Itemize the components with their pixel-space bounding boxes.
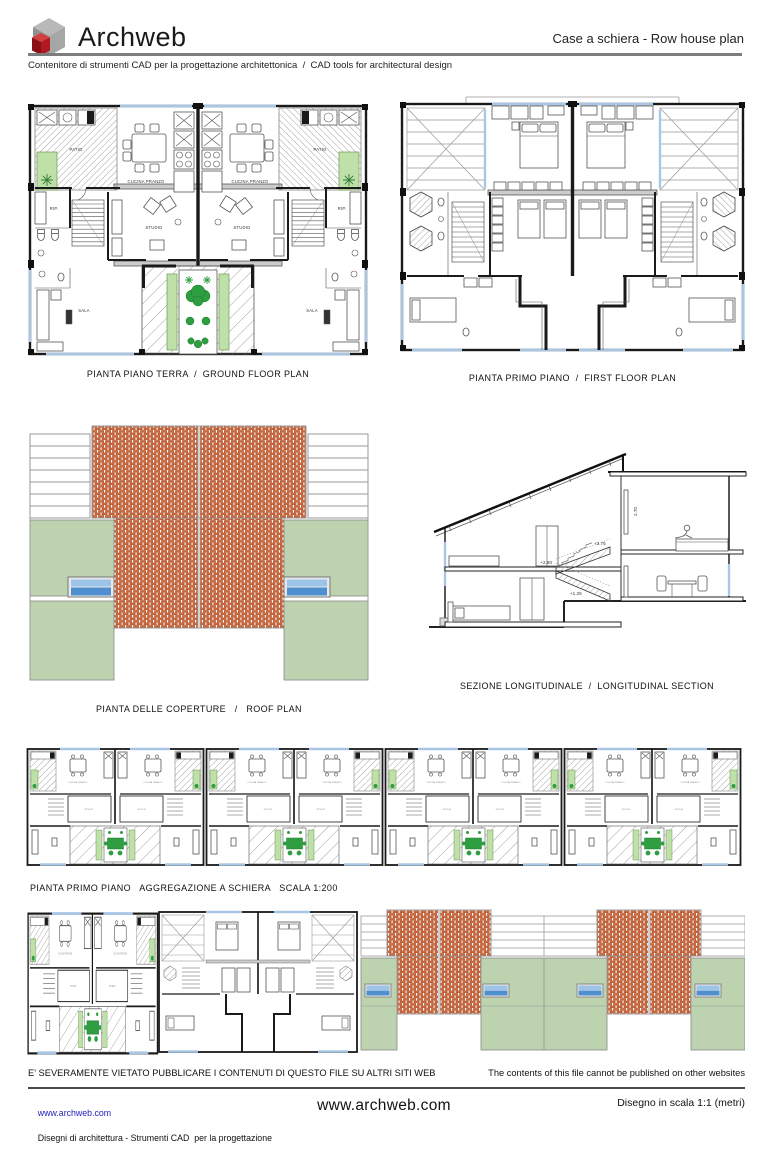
section-caption: SEZIONE LONGITUDINALE / LONGITUDINAL SEC… xyxy=(424,681,750,691)
svg-text:PATIO: PATIO xyxy=(314,147,327,152)
ground-floor-panel: PATIO PATIO CUCINA PRANZO CUCINA PRANZO … xyxy=(28,100,368,379)
section-panel: +2.90 +3.75 +1.25 2.70 SEZIONE LONGITUDI… xyxy=(424,446,750,691)
svg-text:RIP.: RIP. xyxy=(338,206,346,211)
first-floor-caption: PIANTA PRIMO PIANO / FIRST FLOOR PLAN xyxy=(400,373,745,383)
composite-drawing xyxy=(25,908,745,1060)
aggregation-panel: PIANTA PRIMO PIANO AGGREGAZIONE A SCHIER… xyxy=(25,744,745,893)
ground-floor-plan-drawing: PATIO PATIO CUCINA PRANZO CUCINA PRANZO … xyxy=(28,100,368,360)
brand-text: Archweb xyxy=(78,22,187,53)
first-floor-panel: PIANTA PRIMO PIANO / FIRST FLOOR PLAN xyxy=(400,94,745,383)
room-label-studio: STUDIO xyxy=(145,225,163,230)
first-floor-plan-drawing xyxy=(400,94,745,362)
drawing-sheet: CUCINA PRANZO CUCINA PRANZO STUDIO STUDI… xyxy=(0,0,768,1157)
roof-plan-panel: PIANTA DELLE COPERTURE / ROOF PLAN xyxy=(28,420,370,714)
page-title: Case a schiera - Row house plan xyxy=(553,31,745,46)
svg-text:CUCINA PRANZO: CUCINA PRANZO xyxy=(231,179,269,184)
height-label-270: 2.70 xyxy=(633,507,638,516)
level-label-375: +3.75 xyxy=(594,541,606,546)
disclaimer-row: E' SEVERAMENTE VIETATO PUBBLICARE I CONT… xyxy=(28,1068,745,1078)
room-label-patio: PATIO xyxy=(70,147,83,152)
disclaimer-it: E' SEVERAMENTE VIETATO PUBBLICARE I CONT… xyxy=(28,1068,435,1078)
composite-panel xyxy=(25,908,745,1060)
roof-plan-drawing xyxy=(28,420,370,682)
gf-party-wall xyxy=(196,106,199,266)
footer-scale-note: Disegno in scala 1:1 (metri) xyxy=(617,1097,745,1109)
gf-courtyard xyxy=(142,266,254,354)
level-label-125: +1.25 xyxy=(570,591,582,596)
disclaimer-en: The contents of this file cannot be publ… xyxy=(488,1068,745,1078)
composite-roofs xyxy=(361,910,745,1050)
level-label-290: +2.90 xyxy=(540,560,552,565)
ff-party-wall xyxy=(571,104,574,276)
roof-ridge-upper xyxy=(198,426,200,518)
credit-line-1: Disegni di architettura - Strumenti CAD … xyxy=(38,1133,272,1143)
section-drawing: +2.90 +3.75 +1.25 2.70 xyxy=(424,446,750,651)
room-label-cucina: CUCINA PRANZO xyxy=(127,179,165,184)
footer-rule xyxy=(28,1087,745,1089)
roof-ridge-lower xyxy=(198,518,200,628)
section-right-block xyxy=(608,454,746,601)
svg-text:SALA: SALA xyxy=(306,308,318,313)
room-label-sala: SALA xyxy=(78,308,90,313)
ground-floor-caption: PIANTA PIANO TERRA / GROUND FLOOR PLAN xyxy=(28,369,368,379)
header-rule xyxy=(28,53,742,56)
room-label-rip: RIP. xyxy=(50,206,58,211)
subtitle: Contenitore di strumenti CAD per la prog… xyxy=(28,60,452,71)
archweb-logo-icon xyxy=(30,16,68,58)
aggregation-drawing xyxy=(25,744,745,870)
aggregation-caption: PIANTA PRIMO PIANO AGGREGAZIONE A SCHIER… xyxy=(25,883,745,893)
roof-plan-caption: PIANTA DELLE COPERTURE / ROOF PLAN xyxy=(28,704,370,714)
svg-text:STUDIO: STUDIO xyxy=(233,225,251,230)
